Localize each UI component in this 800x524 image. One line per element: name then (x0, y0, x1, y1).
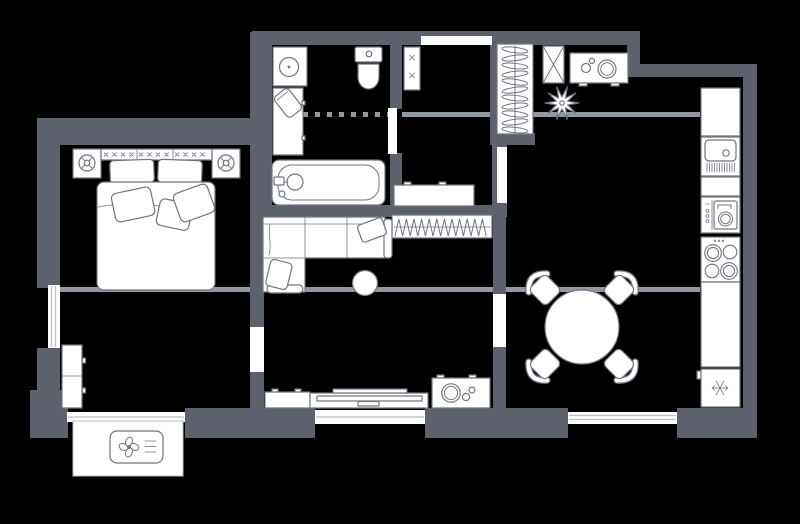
kitchen-counter-mid (701, 177, 740, 196)
wall-bottomright-corner (677, 408, 757, 438)
coffee-table (353, 271, 378, 296)
bath-drain (279, 191, 285, 197)
cabinet-handle (83, 358, 86, 363)
tv (317, 396, 422, 401)
decor-console (432, 375, 490, 408)
wall-bedroom-top (37, 118, 263, 145)
bathroom-cabinet (273, 87, 305, 155)
window-dining (568, 412, 677, 424)
wall-right-exterior (743, 77, 757, 438)
window-left (48, 285, 60, 348)
headboard (101, 149, 212, 160)
wall-bedroom-living-lower (250, 372, 264, 410)
study-cabinet (62, 345, 82, 408)
bed-pillow-right (158, 159, 203, 184)
utility-shelf (404, 47, 420, 90)
kitchen-counter-low (701, 282, 740, 367)
kitchen (697, 88, 740, 407)
balcony (73, 421, 183, 476)
entry-opening (421, 36, 492, 45)
wall-living-dining-b (493, 347, 506, 408)
wall-bedroom-bathroom (250, 32, 272, 215)
floor-plan (0, 0, 800, 524)
shoe-rack (392, 215, 492, 238)
wall-bathroom-right-a (390, 45, 402, 109)
table-lamp-left-icon (79, 155, 95, 171)
bathtub (272, 160, 385, 205)
tv-shelf (333, 389, 407, 393)
bedroom-door (250, 327, 264, 372)
mirror-cabinet (543, 46, 564, 83)
sofa-armrest (384, 219, 392, 258)
tv-stand (358, 402, 379, 407)
table-lamp-right-icon (218, 155, 234, 171)
wall-living-dining-a (493, 203, 506, 294)
toilet (355, 47, 382, 89)
floor-plan-canvas (0, 0, 800, 524)
dining-table (545, 290, 619, 364)
wall-bottom-left (185, 408, 315, 438)
media-cabinet (265, 389, 310, 408)
kitchen-sink (701, 137, 740, 176)
hall-sideboard (394, 182, 474, 206)
entry-console (570, 53, 628, 86)
cabinet-handle (302, 136, 305, 140)
living-dining-door (493, 294, 506, 347)
wall-bedroom-living-upper (250, 215, 264, 327)
study (62, 345, 86, 408)
bathroom-door (388, 108, 397, 154)
wall-bottom-mid (425, 408, 568, 438)
wall-kitchen-top (627, 64, 757, 77)
kitchen-counter-top (701, 88, 740, 136)
wall-wardrobe-bottom (490, 133, 535, 145)
bed-pillow-left (110, 159, 155, 184)
wall-left-upper (37, 118, 60, 288)
wardrobe-with-hangers (497, 44, 533, 134)
hall-kitchen-door (497, 147, 507, 203)
cabinet-handle (302, 101, 305, 105)
washbasin (273, 47, 307, 86)
air-conditioner (110, 431, 163, 463)
bath-faucet (274, 177, 284, 185)
cooktop (701, 237, 740, 282)
cabinet-handle (83, 388, 86, 393)
fridge-freezer (697, 369, 740, 407)
window-living (315, 410, 425, 424)
oven (701, 197, 740, 233)
